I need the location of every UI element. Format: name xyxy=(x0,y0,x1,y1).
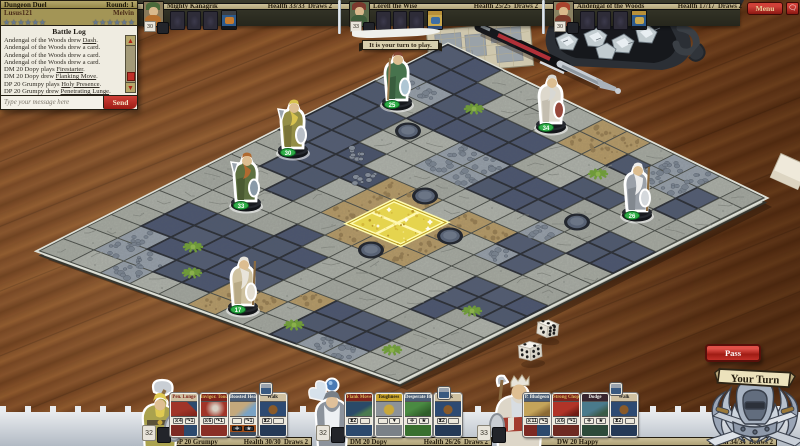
svg-text:26: 26 xyxy=(629,214,636,220)
svg-text:30: 30 xyxy=(285,151,292,157)
svg-text:Your Turn: Your Turn xyxy=(730,373,779,387)
svg-text:25: 25 xyxy=(389,103,396,109)
svg-text:17: 17 xyxy=(235,308,242,314)
svg-text:34: 34 xyxy=(543,126,550,132)
svg-text:33: 33 xyxy=(238,204,245,210)
